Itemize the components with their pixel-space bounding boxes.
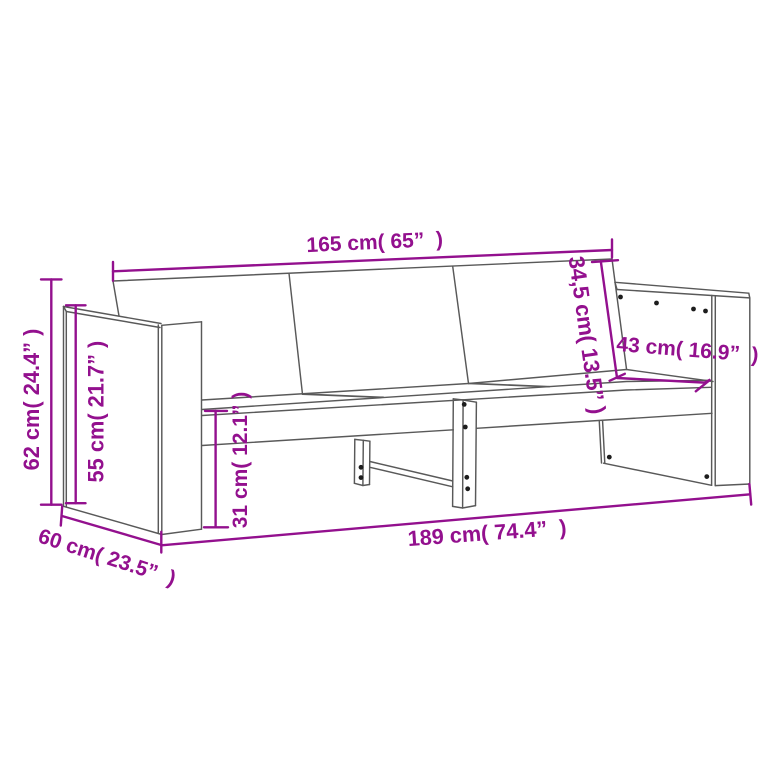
svg-text:31 cm( 12.1” ): 31 cm( 12.1” ) bbox=[229, 392, 252, 529]
svg-text:62 cm( 24.4” ): 62 cm( 24.4” ) bbox=[19, 329, 44, 471]
svg-text:43 cm( 16.9” ): 43 cm( 16.9” ) bbox=[616, 333, 760, 367]
svg-text:189 cm( 74.4” ): 189 cm( 74.4” ) bbox=[407, 515, 568, 552]
svg-text:55 cm( 21.7” ): 55 cm( 21.7” ) bbox=[83, 341, 108, 483]
svg-text:165 cm( 65” ): 165 cm( 65” ) bbox=[306, 228, 443, 257]
svg-text:60 cm( 23.5” ): 60 cm( 23.5” ) bbox=[35, 525, 178, 591]
